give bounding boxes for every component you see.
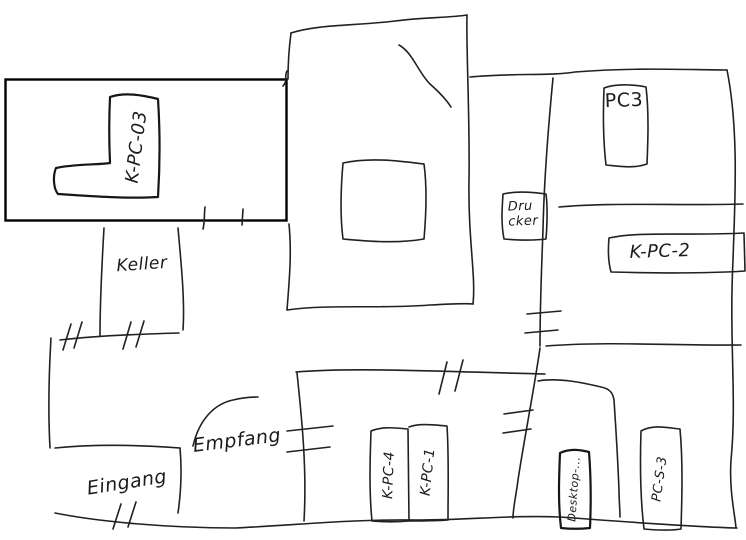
label-keller: Keller (116, 255, 168, 276)
label-k-pc-4: K-PC-4 (381, 451, 397, 499)
wall-center-right (467, 15, 474, 304)
wall-keller-left (100, 228, 104, 336)
wall-eingang-top (55, 445, 180, 448)
floorplan-sketch (0, 0, 746, 540)
wall-center-left-upper (288, 33, 291, 79)
wall-center-bottom (287, 304, 473, 310)
door-tick (113, 504, 121, 529)
wall-floor-line (55, 513, 737, 528)
wall-under-kpc2-room (546, 344, 741, 346)
stair-squiggle (399, 45, 451, 107)
wall-center-left-lower (287, 224, 290, 310)
door-tick (455, 360, 463, 391)
label-pc3: PC3 (605, 91, 644, 111)
door-tick (287, 447, 330, 452)
label-k-pc-2: K-PC-2 (629, 242, 690, 262)
wall-top-right (470, 69, 727, 77)
door-tick (527, 311, 561, 314)
door-tick (63, 324, 71, 350)
wall-tick (242, 209, 243, 225)
door-tick (74, 322, 82, 348)
door-tick (525, 330, 558, 333)
wall-empfang-right (297, 373, 305, 521)
label-drucker-line2: cker (508, 213, 539, 229)
wall-right-outer (727, 70, 736, 528)
wall-left-outer (49, 338, 51, 448)
wall-bottom-rooms-top (296, 370, 545, 374)
door-tick (287, 426, 333, 431)
wall-center-top (291, 15, 467, 33)
inner-shaft-square (341, 160, 426, 242)
wall-tick (203, 207, 205, 229)
label-drucker-line1: Dru (507, 199, 533, 215)
label-drucker: Dru cker (507, 200, 538, 231)
door-tick (439, 362, 447, 394)
drawing-canvas[interactable]: K-PC-03 Keller PC3 Dru cker K-PC-2 Empfa… (0, 0, 746, 540)
wall-eingang-right (178, 448, 181, 513)
wall-keller-right (178, 228, 184, 330)
wall-under-pc3-room (559, 204, 743, 207)
